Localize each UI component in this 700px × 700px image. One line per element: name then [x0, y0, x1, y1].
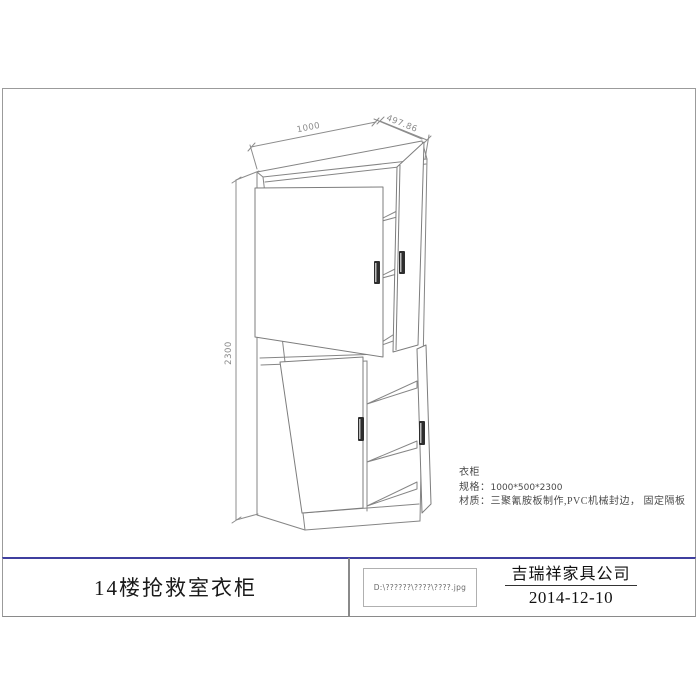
- upper-left-door: [255, 187, 383, 357]
- dimension-depth-label: 497.86: [385, 113, 419, 135]
- door-handle: [399, 251, 405, 274]
- dimension-width-label: 1000: [296, 121, 321, 136]
- upper-right-door-open: [393, 142, 424, 352]
- lower-left-door: [280, 357, 363, 513]
- drawing-title: 14楼抢救室衣柜: [2, 558, 349, 616]
- annotation-material: 材质：三聚氰胺板制作,PVC机械封边， 固定隔板: [459, 495, 685, 510]
- door-handle: [419, 421, 425, 445]
- company-name: 吉瑞祥家具公司: [505, 560, 636, 586]
- file-path: D:\??????\????\????.jpg: [374, 583, 467, 592]
- dimension-height-label: 2300: [224, 341, 234, 365]
- company-cell: 吉瑞祥家具公司 2014-12-10: [480, 560, 662, 608]
- door-handle: [374, 261, 380, 284]
- door-handle: [358, 417, 364, 441]
- cabinet-doors: [255, 142, 431, 513]
- annotation-spec-value: 1000*500*2300: [491, 483, 563, 493]
- annotation-block: 衣柜 规格：1000*500*2300 材质：三聚氰胺板制作,PVC机械封边， …: [459, 466, 685, 510]
- annotation-material-value: 三聚氰胺板制作,PVC机械封边， 固定隔板: [491, 496, 686, 507]
- annotation-item: 衣柜: [459, 466, 685, 481]
- drawing-date: 2014-12-10: [480, 588, 662, 608]
- file-path-box: D:\??????\????\????.jpg: [363, 568, 477, 607]
- annotation-spec: 规格：1000*500*2300: [459, 481, 685, 496]
